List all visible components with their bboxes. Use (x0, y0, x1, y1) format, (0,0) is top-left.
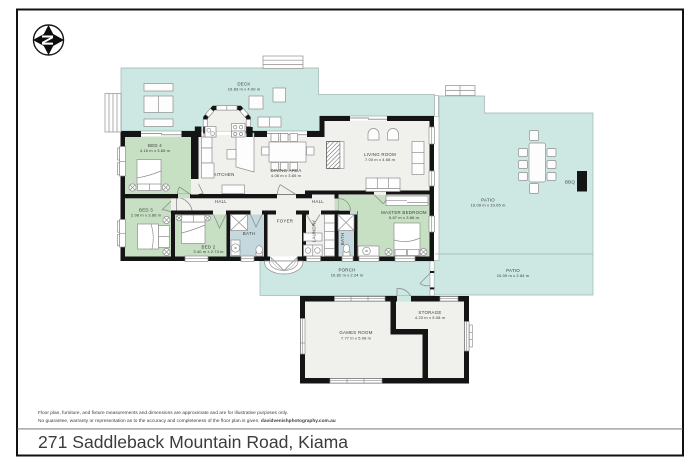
svg-text:HALL: HALL (312, 199, 324, 204)
svg-text:FOYER: FOYER (277, 218, 293, 223)
svg-text:2.98 m x 3.86 m: 2.98 m x 3.86 m (131, 213, 162, 218)
svg-text:KITCHEN: KITCHEN (213, 172, 234, 177)
svg-text:5.87 m x 3.88 m: 5.87 m x 3.88 m (389, 215, 420, 220)
svg-text:Floor plan, furniture, and fix: Floor plan, furniture, and fixture measu… (38, 410, 288, 416)
svg-text:3.40 m x 2.73 m: 3.40 m x 2.73 m (193, 249, 224, 254)
svg-text:BATH: BATH (340, 233, 345, 245)
svg-text:7.00 m x 4.68 m: 7.00 m x 4.68 m (365, 157, 396, 162)
svg-text:19.83 m x 4.00 m: 19.83 m x 4.00 m (228, 87, 261, 92)
svg-text:4.16 m x 3.65 m: 4.16 m x 3.65 m (140, 148, 171, 153)
svg-text:10.09 m x 2.84 m: 10.09 m x 2.84 m (497, 273, 530, 278)
svg-text:4.08 m x 3.65 m: 4.08 m x 3.65 m (271, 173, 302, 178)
svg-text:10.82 m x 2.24 m: 10.82 m x 2.24 m (331, 273, 364, 278)
svg-text:10.09 m x 10.05 m: 10.09 m x 10.05 m (471, 203, 506, 208)
svg-text:N: N (40, 34, 57, 45)
svg-text:271 Saddleback Mountain Road,: 271 Saddleback Mountain Road, Kiama (38, 432, 348, 452)
svg-text:7.77 m x 5.08 m: 7.77 m x 5.08 m (341, 336, 372, 341)
svg-text:GAMES ROOM: GAMES ROOM (339, 330, 372, 335)
svg-text:No guarantee, warranty or repr: No guarantee, warranty or representation… (38, 418, 336, 424)
svg-text:BBQ: BBQ (565, 180, 575, 185)
svg-text:BATH: BATH (243, 231, 255, 236)
svg-text:LAUNDRY: LAUNDRY (312, 220, 317, 243)
svg-text:HALL: HALL (215, 199, 227, 204)
svg-text:4.23 m x 5.08 m: 4.23 m x 5.08 m (415, 315, 446, 320)
